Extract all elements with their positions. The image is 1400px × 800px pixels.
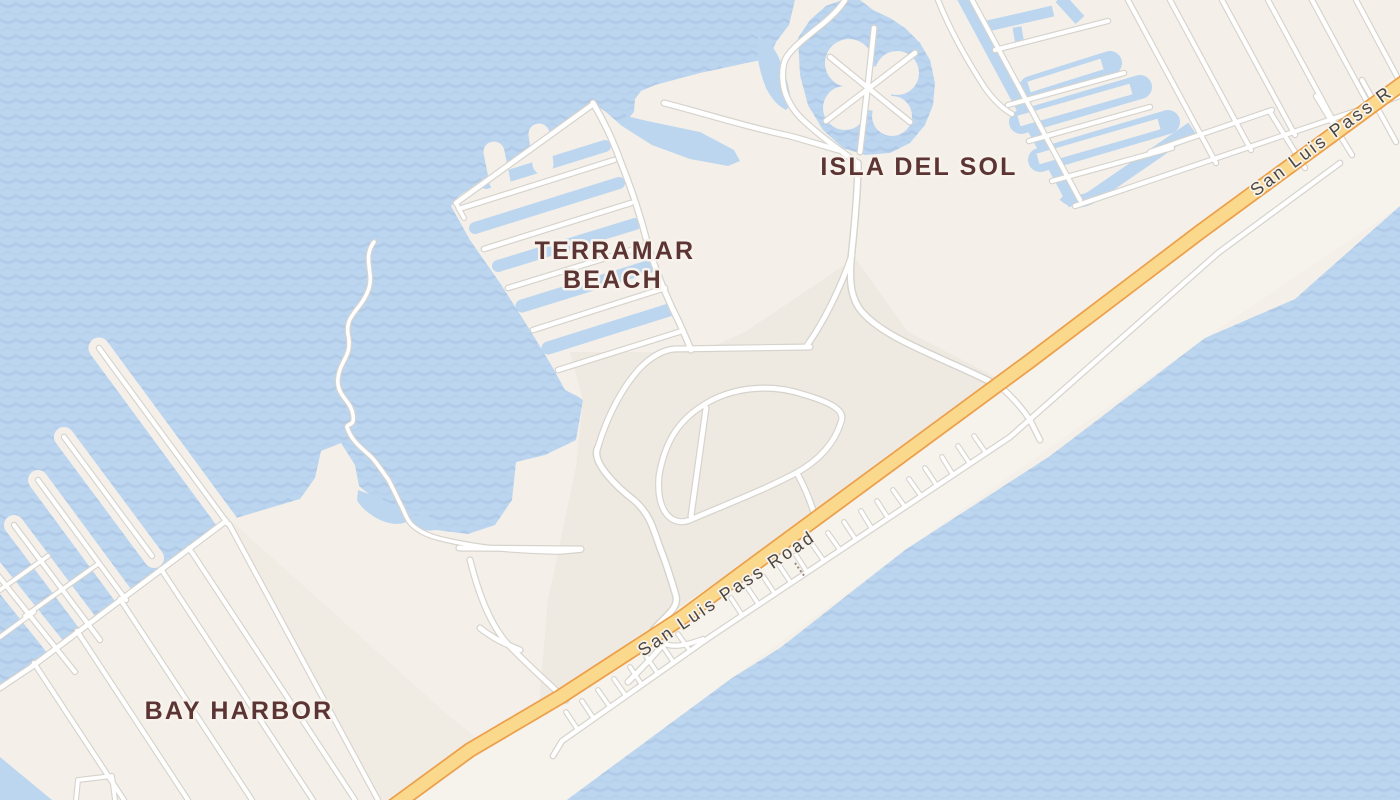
- svg-text:TERRAMAR: TERRAMAR: [535, 237, 696, 265]
- svg-text:BAY HARBOR: BAY HARBOR: [145, 697, 334, 725]
- svg-text:BEACH: BEACH: [563, 266, 663, 294]
- svg-text:ISLA DEL SOL: ISLA DEL SOL: [820, 153, 1017, 181]
